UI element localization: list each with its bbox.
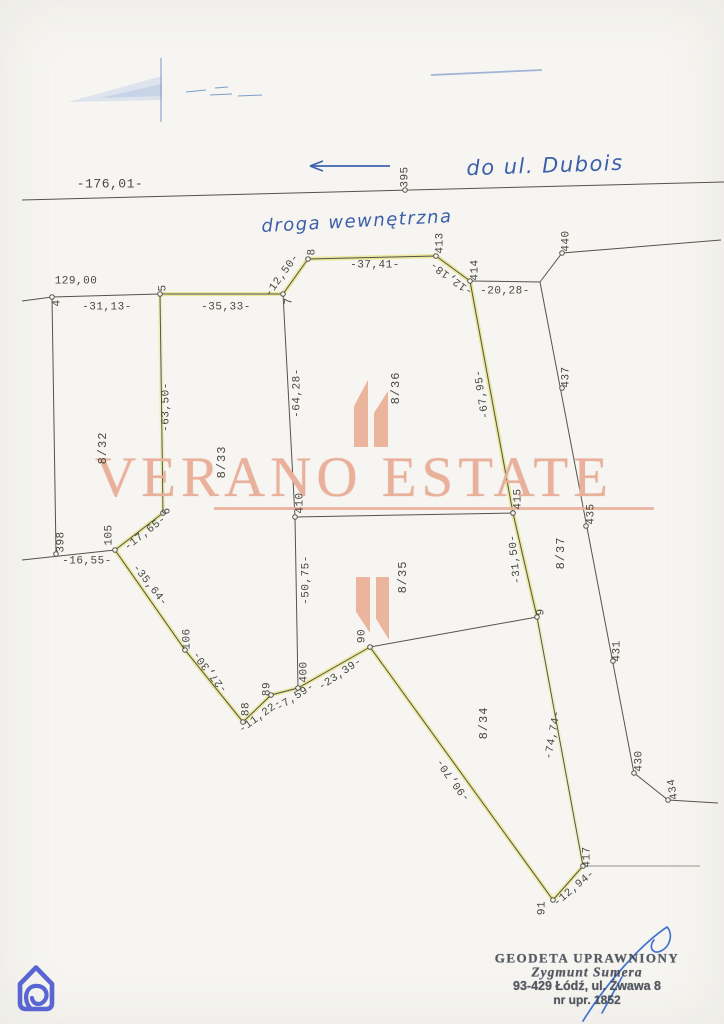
- parcel-label: 8/36: [390, 372, 402, 405]
- measurement-label: -16,55-: [62, 557, 112, 568]
- point-label: 435: [587, 503, 598, 524]
- measurement-label: -31,13-: [82, 303, 132, 314]
- point-label: 417: [583, 846, 594, 867]
- scanned-survey-map-page: VERANO ESTATE do ul. Dubois droga wewnęt…: [0, 0, 724, 1024]
- point-label: 440: [562, 230, 573, 251]
- measurement-label: -176,01-: [77, 178, 143, 191]
- parcel-label: 8/35: [397, 561, 409, 594]
- left-arrow-icon: [310, 161, 390, 171]
- point-label: 431: [613, 640, 624, 661]
- stamp-title: GEODETA UPRAWNIONY: [495, 952, 680, 965]
- point-label: 398: [57, 531, 68, 552]
- point-label: 395: [401, 166, 412, 187]
- point-label: 430: [635, 750, 646, 771]
- point-label: 8: [308, 248, 319, 255]
- point-label: 4: [53, 299, 64, 306]
- measurement-label: -37,41-: [350, 261, 400, 272]
- handwriting-direction-note: do ul. Dubois: [466, 153, 624, 179]
- point-label: 106: [183, 628, 194, 649]
- point-label: 91: [538, 901, 549, 915]
- point-label: 7: [285, 297, 296, 304]
- measurement-label: -64,28-: [293, 368, 304, 418]
- point-label: 5: [159, 284, 170, 291]
- point-label: 90: [358, 629, 369, 643]
- point-label: 437: [562, 366, 573, 387]
- point-label: 105: [105, 524, 116, 545]
- point-label: 6: [163, 507, 174, 514]
- watermark-text: VERANO ESTATE: [95, 449, 613, 506]
- agency-house-logo: [20, 968, 52, 1010]
- measurement-label: -20,28-: [480, 287, 530, 298]
- parcel-label: 8/34: [478, 707, 490, 740]
- stamp-name: Zygmunt Sumera: [531, 965, 642, 979]
- stamp-address: 93-429 Łódź, ul. Żwawa 8: [513, 980, 661, 993]
- point-label: 400: [300, 661, 311, 682]
- measurement-label: -50,75-: [302, 555, 313, 605]
- stamp-license-number: nr upr. 1852: [553, 994, 620, 1006]
- faded-pen-line: [431, 70, 542, 75]
- point-label: 410: [296, 492, 307, 513]
- measurement-label: -35,33-: [201, 303, 251, 314]
- point-label: 414: [471, 259, 482, 280]
- point-label: 89: [263, 682, 274, 696]
- parcel-label: 8/32: [97, 432, 109, 465]
- measurement-label: 129,00: [55, 277, 98, 288]
- parcel-label: 8/33: [216, 446, 228, 479]
- point-label: 88: [242, 702, 253, 716]
- point-label: 9: [537, 608, 548, 615]
- faded-pen-mark: [68, 58, 262, 122]
- measurement-label: -63,50-: [162, 382, 173, 432]
- parcel-label: 8/37: [555, 537, 567, 570]
- point-label: 413: [436, 232, 447, 253]
- point-label: 415: [514, 488, 525, 509]
